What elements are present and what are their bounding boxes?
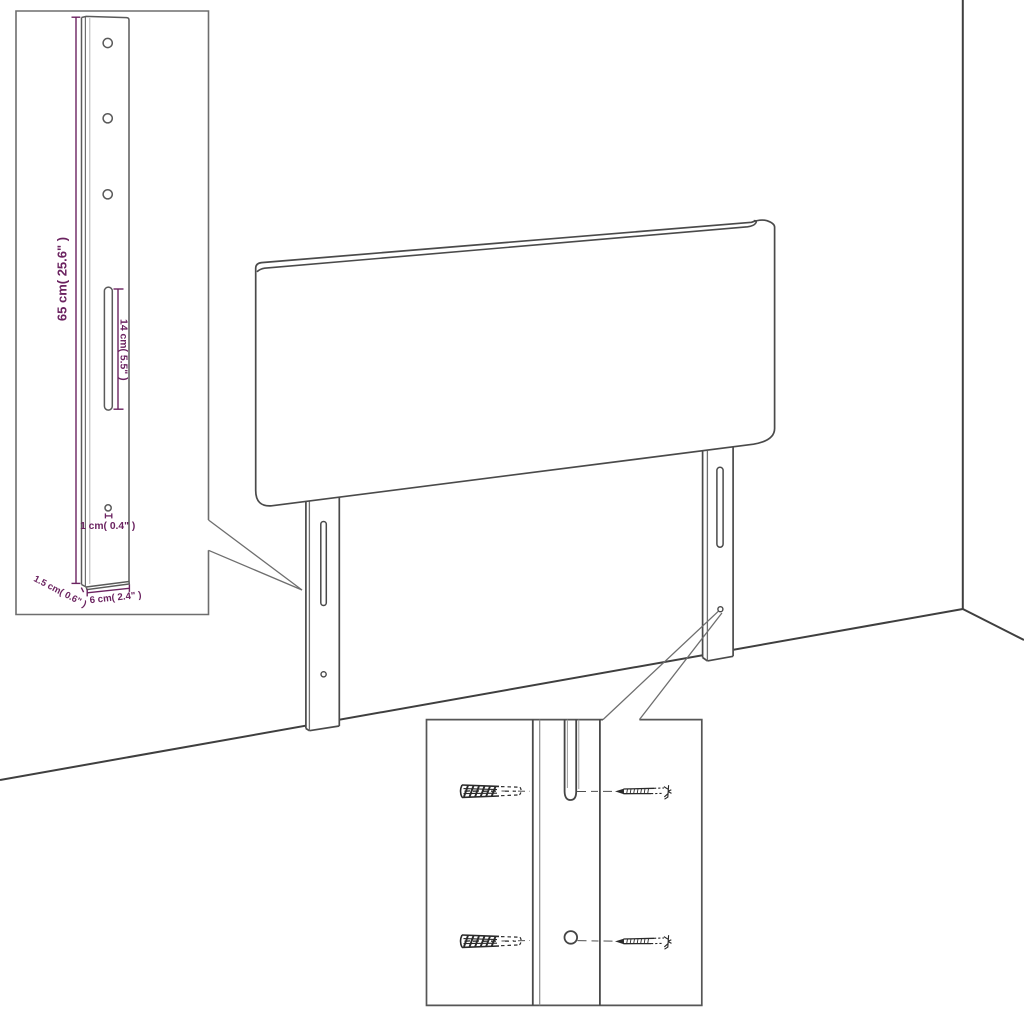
svg-text:14 cm( 5.5" ): 14 cm( 5.5" ) — [118, 319, 129, 381]
svg-text:65 cm( 25.6" ): 65 cm( 25.6" ) — [55, 237, 70, 321]
svg-text:1 cm( 0.4" ): 1 cm( 0.4" ) — [80, 521, 135, 532]
